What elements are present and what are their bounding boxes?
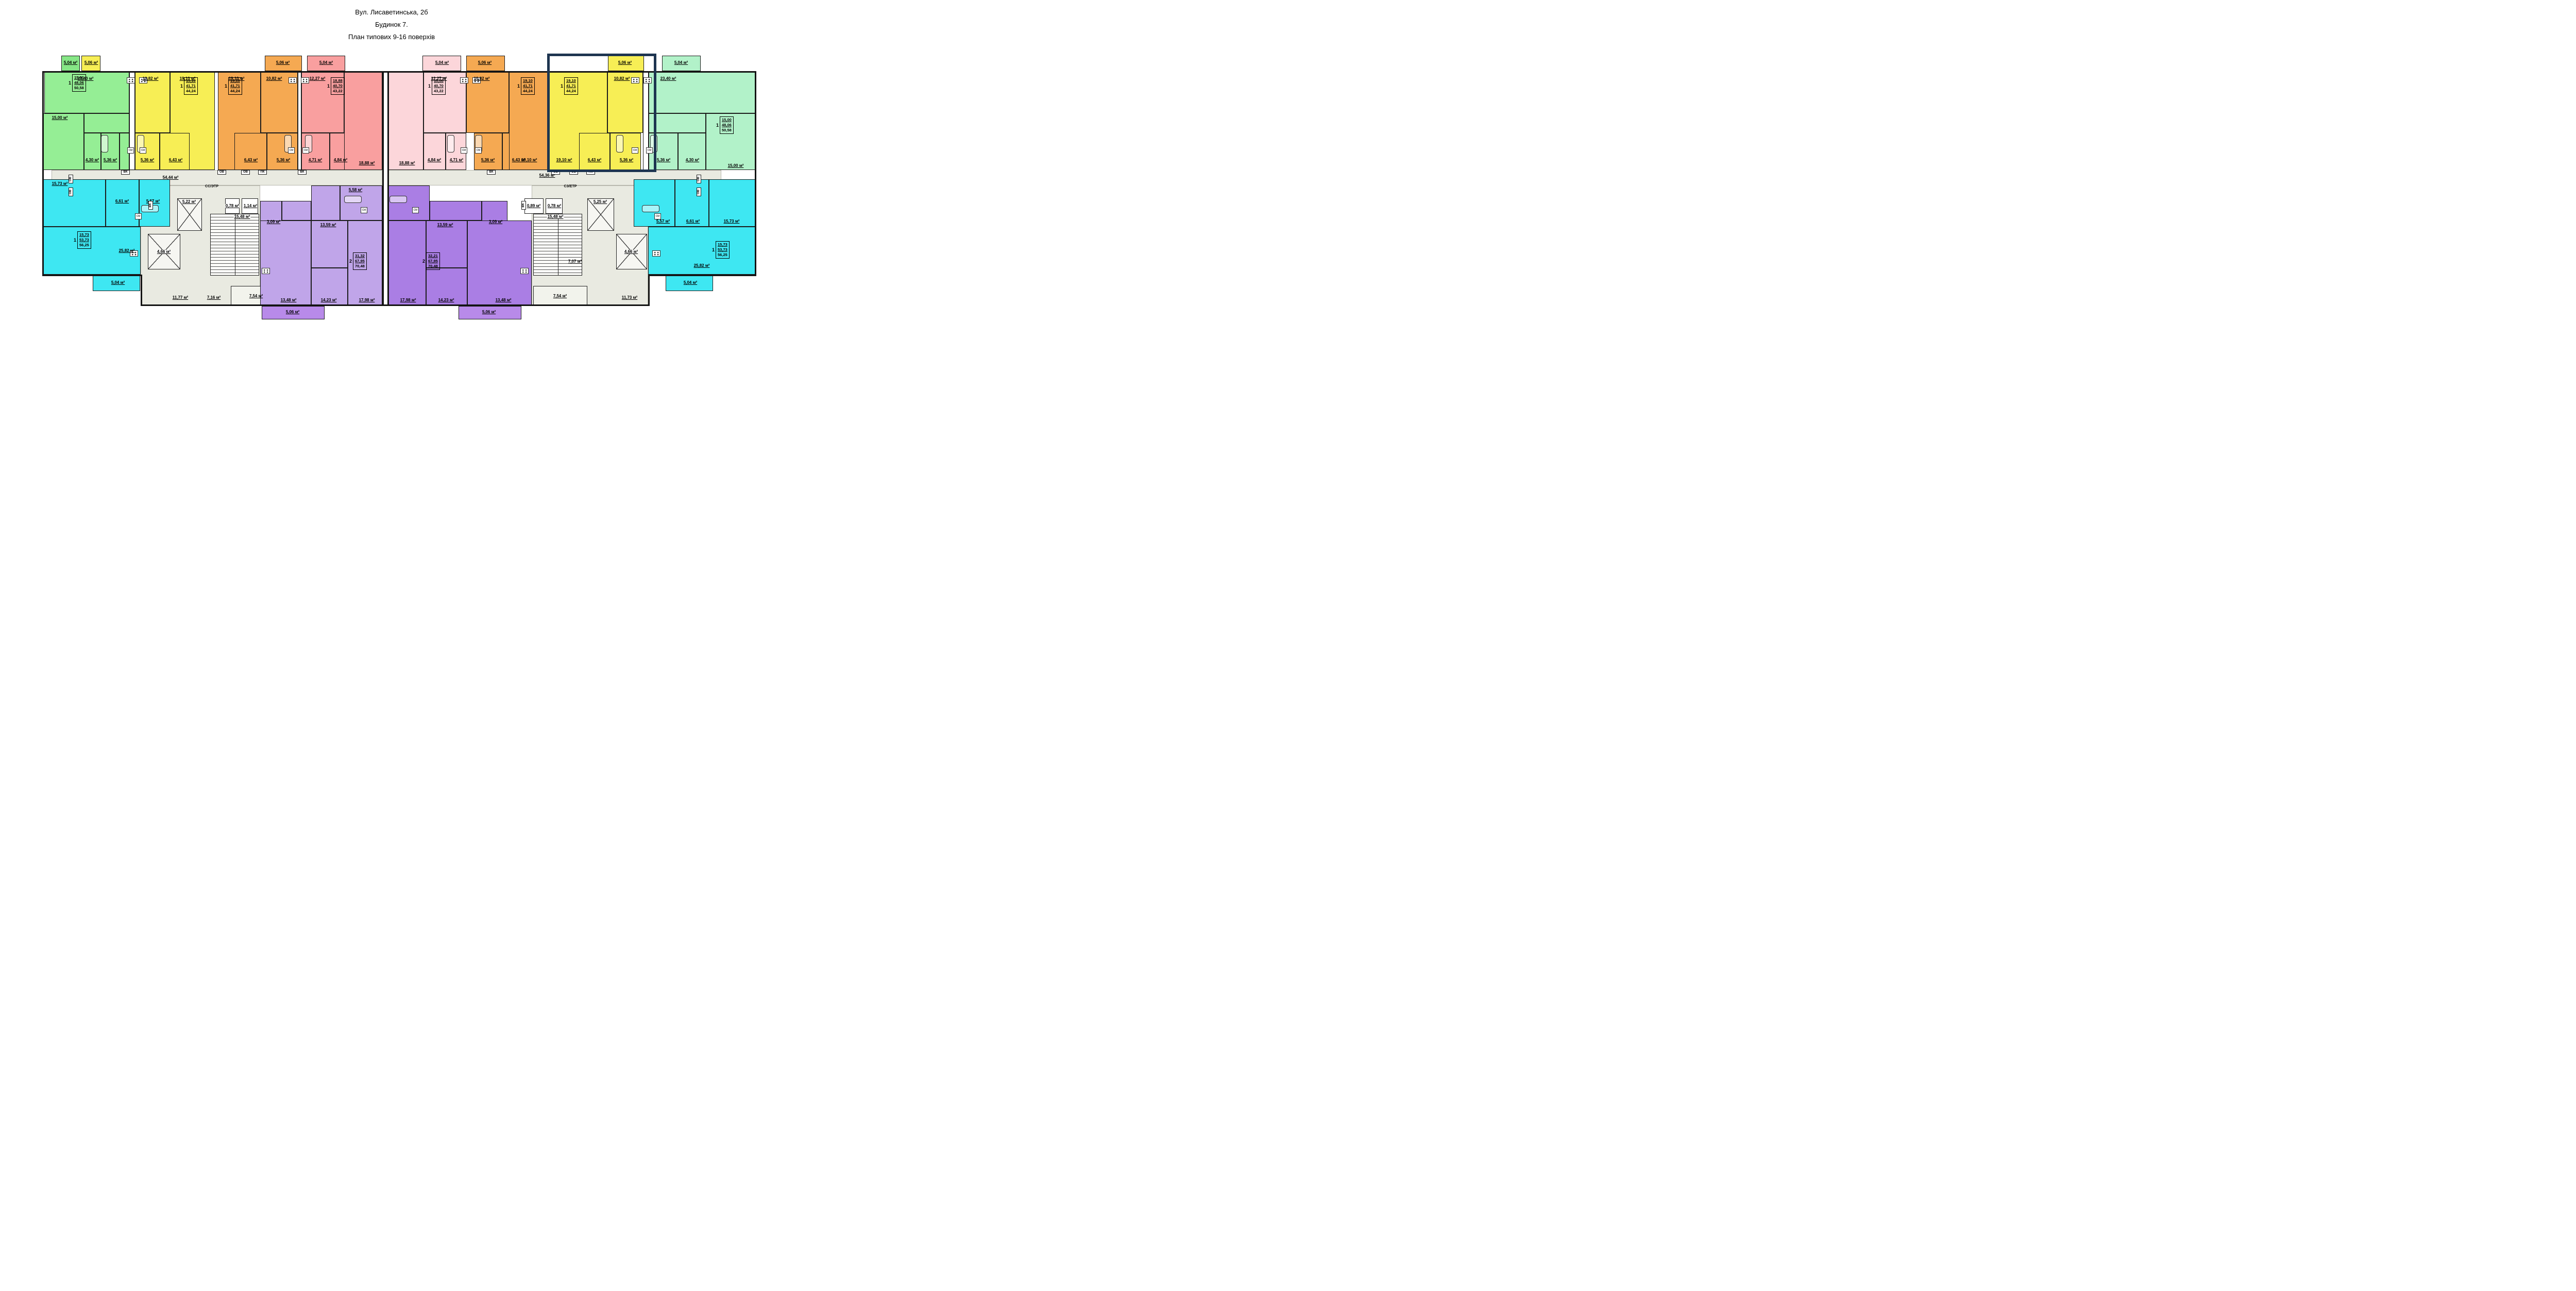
service-label: 7,16 м² <box>207 296 221 300</box>
staircase-label: 15,48 м² <box>234 215 251 219</box>
bathtub-icon <box>101 135 108 152</box>
wall <box>648 275 650 306</box>
staircase-label: 15,48 м² <box>547 215 564 219</box>
apartment-area-value: 32,21 <box>428 253 438 259</box>
loggia-label: 7,54 м² <box>249 294 263 298</box>
service-duct-box: ПК <box>258 170 267 175</box>
service-label: СС/ЭТР <box>205 185 218 189</box>
apartment-rooms-count: 1 <box>327 83 330 89</box>
service-room-label: 1,14 м² <box>243 204 258 208</box>
room-purple-filler <box>282 201 311 220</box>
wall <box>141 304 650 306</box>
service-duct-box: ВК <box>487 170 496 175</box>
room-green-filler <box>84 113 129 133</box>
room-orange-hall <box>234 133 267 170</box>
apartment-area-value: 19,10 <box>230 78 240 83</box>
balcony-label: 5,04 м² <box>64 61 77 65</box>
room-orange-kitchen-label: 10,82 м² <box>266 77 282 81</box>
service-room-label: 0,89 м² <box>527 204 541 208</box>
service-label: 7,07 м² <box>568 260 582 264</box>
apartment-area-value: 56,25 <box>718 252 727 258</box>
apartment-area-value: 15,00 <box>722 117 732 123</box>
room-cyan-hall-r-label: 6,61 м² <box>686 219 700 224</box>
balcony-label: 5,06 м² <box>286 310 299 314</box>
apartment-area-value: 50,58 <box>722 128 732 133</box>
service-duct-box: ОВ <box>217 170 226 175</box>
service-label: 54,44 м² <box>163 176 179 180</box>
apartment-areas: 19,1041,7144,24 <box>228 77 242 95</box>
stove-icon <box>127 77 135 83</box>
apartment-rooms-count: 2 <box>422 259 425 264</box>
washing-machine-box: СМ <box>412 207 419 213</box>
stove-icon <box>301 77 309 83</box>
apartment-area-value: 44,24 <box>186 89 196 94</box>
bathtub-icon <box>447 135 454 152</box>
room-green-hall-r <box>678 133 706 170</box>
room-orange-bath-label: 5,36 м² <box>277 158 290 162</box>
wall <box>141 275 142 306</box>
apartment-info-box: 115,0048,0650,58 <box>716 116 734 134</box>
room-green-bedroom-r-label: 15,00 м² <box>728 164 744 168</box>
room-cyan-living-r-label: 25,82 м² <box>694 264 710 268</box>
apartment-info-box: 119,1041,7144,24 <box>180 77 198 95</box>
service-duct-box: ВК <box>521 201 526 210</box>
room-purple-living-r-label: 17,98 м² <box>400 298 416 302</box>
room-purple-living-label: 17,98 м² <box>359 298 375 302</box>
room-pink-hall-label: 4,84 м² <box>428 158 441 162</box>
apartment-info-box: 115,7353,7356,25 <box>74 231 91 249</box>
apartment-rooms-count: 2 <box>349 259 352 264</box>
balcony-label: 5,06 м² <box>482 310 496 314</box>
apartment-area-value: 19,10 <box>523 78 533 83</box>
room-purple-room1 <box>311 220 348 268</box>
service-duct-box: ВК <box>298 170 307 175</box>
apartment-areas: 15,7353,7356,25 <box>77 231 91 249</box>
staircase <box>210 214 259 276</box>
room-shaft <box>129 72 135 170</box>
floor-plan-page: Вул. Лисаветинська, 2б Будинок 7. План т… <box>0 0 793 323</box>
room-green-bedroom <box>42 113 84 170</box>
room-green-hall-label: 4,30 м² <box>86 158 99 162</box>
room-shaft <box>298 72 301 170</box>
apartment-area-value: 18,88 <box>434 78 444 83</box>
room-purple-kitchen <box>260 220 311 306</box>
room-purple-filler-r <box>430 201 482 220</box>
room-salmon-living-label: 18,88 м² <box>359 161 375 165</box>
room-orange-living-r-label: 19,10 м² <box>521 158 537 162</box>
service-room-label: 0,78 м² <box>225 204 240 208</box>
balcony-label: 5,04 м² <box>111 281 125 285</box>
room-purple-room1-r-label: 13,59 м² <box>437 223 453 227</box>
room-purple-room1-label: 13,59 м² <box>320 223 336 227</box>
apartment-areas: 19,1041,7144,24 <box>521 77 535 95</box>
apartment-rooms-count: 1 <box>517 83 520 89</box>
room-purple-wc-label: 3,09 м² <box>267 220 280 224</box>
apartment-info-box: 231,3267,9570,48 <box>349 252 367 270</box>
apartment-rooms-count: 1 <box>716 123 719 128</box>
apartment-info-box: 232,2167,9570,48 <box>422 252 440 270</box>
apartment-area-value: 56,25 <box>79 243 89 248</box>
room-salmon-kitchen-label: 12,27 м² <box>310 77 326 81</box>
wall <box>382 71 384 306</box>
staircase <box>533 214 582 276</box>
elevator-label: 5,22 м² <box>182 200 196 204</box>
room-salmon-bath-label: 4,71 м² <box>309 158 322 162</box>
apartment-area-value: 18,88 <box>333 78 343 83</box>
washing-machine-box: СМ <box>475 147 482 154</box>
apartment-area-value: 53,73 <box>718 247 727 252</box>
room-cyan-bedroom <box>42 179 106 227</box>
room-purple-living-r <box>387 220 426 306</box>
room-purple-room2-r-label: 14,23 м² <box>438 298 454 302</box>
apartment-info-box: 118,8840,7043,22 <box>327 77 345 95</box>
apartment-areas: 31,3267,9570,48 <box>353 252 367 270</box>
apartment-area-value: 40,70 <box>333 83 343 89</box>
room-cyan-bedroom-label: 15,73 м² <box>52 182 68 186</box>
room-purple-bath-r <box>387 185 430 220</box>
room-green-hall <box>84 133 101 170</box>
apartment-area-value: 53,73 <box>79 237 89 243</box>
stove-icon <box>289 77 297 83</box>
balcony-label: 5,06 м² <box>276 61 290 65</box>
room-pink-bath-label: 4,71 м² <box>450 158 463 162</box>
apartment-areas: 15,0048,0650,58 <box>72 74 86 92</box>
balcony-label: 5,04 м² <box>319 61 333 65</box>
washing-machine-box: СМ <box>361 207 367 213</box>
wall <box>42 71 44 276</box>
highlight-rectangle <box>547 54 656 172</box>
service-duct-box: ОВ <box>69 188 73 196</box>
balcony-label: 5,04 м² <box>684 281 697 285</box>
room-cyan-living-label: 25,82 м² <box>119 249 135 253</box>
room-green-bath-label: 5,36 м² <box>104 158 117 162</box>
apartment-rooms-count: 1 <box>428 83 431 89</box>
room-green-filler-r <box>649 113 706 133</box>
wall <box>648 275 756 276</box>
apartment-areas: 18,8840,7043,22 <box>331 77 345 95</box>
apartment-rooms-count: 1 <box>74 237 76 243</box>
room-yellow-bath-label: 5,36 м² <box>141 158 154 162</box>
balcony-label: 5,04 м² <box>435 61 449 65</box>
apartment-rooms-count: 1 <box>69 80 71 86</box>
apartment-area-value: 41,71 <box>523 83 533 89</box>
apartment-areas: 19,1041,7144,24 <box>184 77 198 95</box>
elevator-label: 4,66 м² <box>624 250 638 254</box>
apartment-area-value: 50,58 <box>74 86 84 91</box>
balcony-label: 5,06 м² <box>478 61 492 65</box>
room-orange-hall-label: 6,43 м² <box>244 158 258 162</box>
stove-icon <box>652 250 660 257</box>
room-cyan-hall-label: 6,61 м² <box>115 199 129 203</box>
bathtub-icon <box>344 196 362 203</box>
room-green-bath-r-label: 5,36 м² <box>657 158 670 162</box>
room-green-bedroom-label: 15,00 м² <box>52 116 68 120</box>
floor-plan: 7,54 м²7,54 м²5,04 м²5,06 м²5,06 м²5,04 … <box>0 0 793 323</box>
service-duct-box: ОВ <box>697 188 701 196</box>
elevator-label: 5,25 м² <box>593 200 607 204</box>
apartment-area-value: 43,22 <box>333 89 343 94</box>
room-salmon-hall-label: 4,84 м² <box>334 158 347 162</box>
room-orange-bath-r-label: 5,36 м² <box>481 158 495 162</box>
apartment-area-value: 41,71 <box>186 83 196 89</box>
apartment-area-value: 67,95 <box>355 259 365 264</box>
room-pink-living <box>387 72 423 170</box>
washing-machine-box: СМ <box>127 147 134 154</box>
apartment-areas: 15,0048,0650,58 <box>720 116 734 134</box>
apartment-area-value: 41,71 <box>230 83 240 89</box>
bathtub-icon <box>642 205 659 212</box>
washing-machine-box: СМ <box>461 147 467 154</box>
balcony-label: 5,06 м² <box>84 61 98 65</box>
apartment-areas: 32,2167,9570,48 <box>426 252 440 270</box>
room-purple-room2-label: 14,23 м² <box>321 298 337 302</box>
wall <box>755 71 756 276</box>
stove-icon <box>262 268 270 274</box>
apartment-areas: 18,8840,7043,22 <box>432 77 446 95</box>
apartment-info-box: 119,1041,7144,24 <box>225 77 242 95</box>
service-label: СЗ/ЕТР <box>564 185 577 189</box>
apartment-info-box: 119,1041,7144,24 <box>517 77 535 95</box>
loggia-label: 7,54 м² <box>553 294 567 298</box>
apartment-area-value: 48,06 <box>74 80 84 86</box>
room-purple-wc-r-label: 3,09 м² <box>489 220 502 224</box>
apartment-area-value: 44,24 <box>523 89 533 94</box>
apartment-area-value: 48,06 <box>722 123 732 128</box>
elevator-label: 4,66 м² <box>157 250 171 254</box>
service-room-label: 0,78 м² <box>547 204 562 208</box>
stove-icon <box>460 77 468 83</box>
room-cyan-bath-r-label: 5,57 м² <box>656 219 670 224</box>
washing-machine-box: СМ <box>302 147 309 154</box>
wall <box>42 275 142 276</box>
washing-machine-box: СМ <box>140 147 146 154</box>
apartment-area-value: 15,73 <box>79 232 89 237</box>
room-purple-kitchen-r <box>467 220 532 306</box>
room-green-living-r-label: 23,40 м² <box>660 77 676 81</box>
room-purple-bath-label: 5,58 м² <box>349 188 362 192</box>
room-salmon-living <box>344 72 382 170</box>
room-purple-kitchen-label: 13,48 м² <box>281 298 297 302</box>
service-label: 11,77 м² <box>173 296 188 300</box>
apartment-info-box: 118,8840,7043,22 <box>428 77 446 95</box>
apartment-area-value: 40,70 <box>434 83 444 89</box>
washing-machine-box: СМ <box>288 147 295 154</box>
room-orange-kitchen-r-label: 10,82 м² <box>474 77 490 81</box>
room-green-hall-r-label: 4,30 м² <box>686 158 699 162</box>
apartment-area-value: 44,24 <box>230 89 240 94</box>
apartment-rooms-count: 1 <box>225 83 227 89</box>
service-duct-box: ОВ <box>241 170 250 175</box>
room-pink-living-label: 18,88 м² <box>399 161 415 165</box>
room-yellow-hall <box>160 133 190 170</box>
room-pink-hall <box>423 133 446 170</box>
apartment-rooms-count: 1 <box>712 247 715 252</box>
apartment-info-box: 115,7353,7356,25 <box>712 241 730 259</box>
room-yellow-kitchen-label: 10,82 м² <box>143 77 159 81</box>
apartment-areas: 15,7353,7356,25 <box>716 241 730 259</box>
wall <box>387 71 389 306</box>
apartment-area-value: 70,48 <box>355 264 365 269</box>
apartment-area-value: 43,22 <box>434 89 444 94</box>
apartment-area-value: 70,48 <box>428 264 438 269</box>
room-purple-filler <box>311 185 340 220</box>
washing-machine-box: СМ <box>135 213 142 219</box>
stove-icon <box>520 268 529 274</box>
room-purple-kitchen-r-label: 13,48 м² <box>496 298 512 302</box>
service-duct-box: ВК <box>121 170 130 175</box>
bathtub-icon <box>389 196 407 203</box>
apartment-info-box: 115,0048,0650,58 <box>69 74 86 92</box>
apartment-area-value: 19,10 <box>186 78 196 83</box>
apartment-area-value: 31,32 <box>355 253 365 259</box>
room-cyan-bedroom-r-label: 15,73 м² <box>724 219 740 224</box>
service-duct-box: ВК <box>148 201 153 210</box>
service-duct-box: ОВ <box>69 175 73 183</box>
apartment-area-value: 15,00 <box>74 75 84 80</box>
apartment-area-value: 15,73 <box>718 242 727 247</box>
service-label: 11,73 м² <box>622 296 637 300</box>
apartment-area-value: 67,95 <box>428 259 438 264</box>
room-yellow-hall-label: 6,43 м² <box>169 158 182 162</box>
apartment-rooms-count: 1 <box>180 83 183 89</box>
balcony-label: 5,04 м² <box>674 61 688 65</box>
service-duct-box: ОВ <box>697 175 701 183</box>
